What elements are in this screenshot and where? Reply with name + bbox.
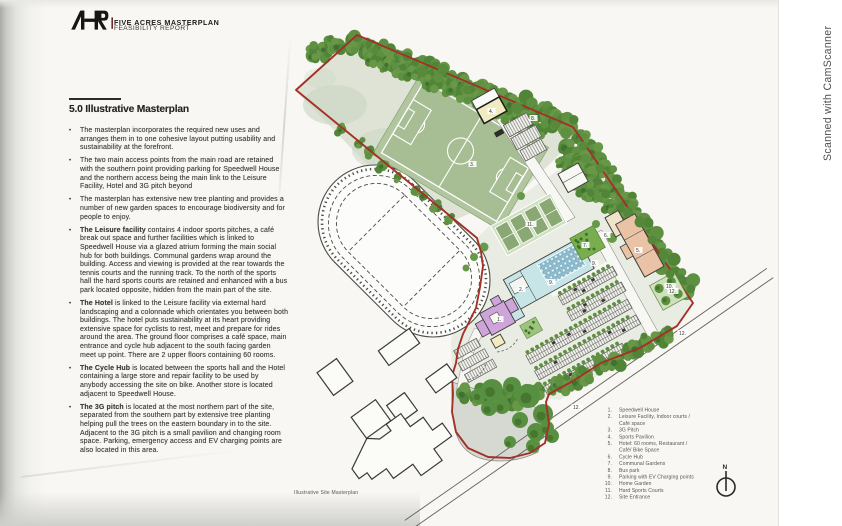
- svg-text:9.: 9.: [549, 280, 553, 286]
- svg-text:9.: 9.: [592, 261, 596, 267]
- svg-text:Hard Sports Courts: Hard Sports Courts: [619, 488, 664, 494]
- svg-text:3.: 3.: [470, 162, 474, 168]
- svg-text:2.: 2.: [608, 414, 612, 420]
- svg-text:1.: 1.: [608, 408, 612, 414]
- svg-text:4.: 4.: [608, 434, 612, 440]
- svg-text:11.: 11.: [527, 222, 534, 228]
- svg-text:11.: 11.: [605, 488, 612, 494]
- svg-text:10.: 10.: [605, 481, 612, 487]
- svg-text:9.: 9.: [608, 475, 612, 481]
- svg-text:3.: 3.: [608, 428, 612, 434]
- svg-text:3G Pitch: 3G Pitch: [619, 428, 639, 434]
- svg-text:12.: 12.: [573, 405, 580, 411]
- svg-text:7.: 7.: [583, 243, 587, 249]
- svg-text:8.: 8.: [608, 468, 612, 474]
- svg-text:6.: 6.: [604, 233, 608, 239]
- svg-text:12.: 12.: [605, 495, 612, 501]
- svg-text:12.: 12.: [679, 331, 686, 337]
- svg-text:Cycle Hub: Cycle Hub: [619, 454, 643, 460]
- svg-text:7.: 7.: [608, 461, 612, 467]
- svg-text:Home Garden: Home Garden: [619, 481, 652, 487]
- svg-text:5.: 5.: [608, 441, 612, 447]
- svg-text:Bus park: Bus park: [619, 468, 640, 474]
- svg-text:2.: 2.: [519, 287, 523, 293]
- svg-text:Leisure Facility, Indoor court: Leisure Facility, Indoor courts /: [619, 414, 691, 420]
- svg-text:5.: 5.: [636, 248, 640, 254]
- svg-text:1.: 1.: [497, 317, 501, 323]
- svg-text:Hotel: 60 rooms, Restaurant /: Hotel: 60 rooms, Restaurant /: [619, 441, 688, 447]
- svg-text:12.: 12.: [669, 289, 676, 295]
- svg-text:4.: 4.: [489, 109, 493, 115]
- svg-text:Site Entrance: Site Entrance: [619, 495, 650, 501]
- svg-text:Communal Gardens: Communal Gardens: [619, 461, 666, 467]
- svg-text:N: N: [723, 464, 728, 471]
- svg-text:8.: 8.: [531, 116, 535, 122]
- svg-text:6.: 6.: [608, 454, 612, 460]
- svg-text:Café space: Café space: [619, 421, 645, 427]
- svg-text:Café/ Bike Space: Café/ Bike Space: [619, 448, 659, 454]
- svg-text:Sports Pavilion: Sports Pavilion: [619, 434, 654, 440]
- svg-text:Parking with EV Charging point: Parking with EV Charging points: [619, 475, 694, 481]
- svg-text:Speedwell House: Speedwell House: [619, 408, 660, 414]
